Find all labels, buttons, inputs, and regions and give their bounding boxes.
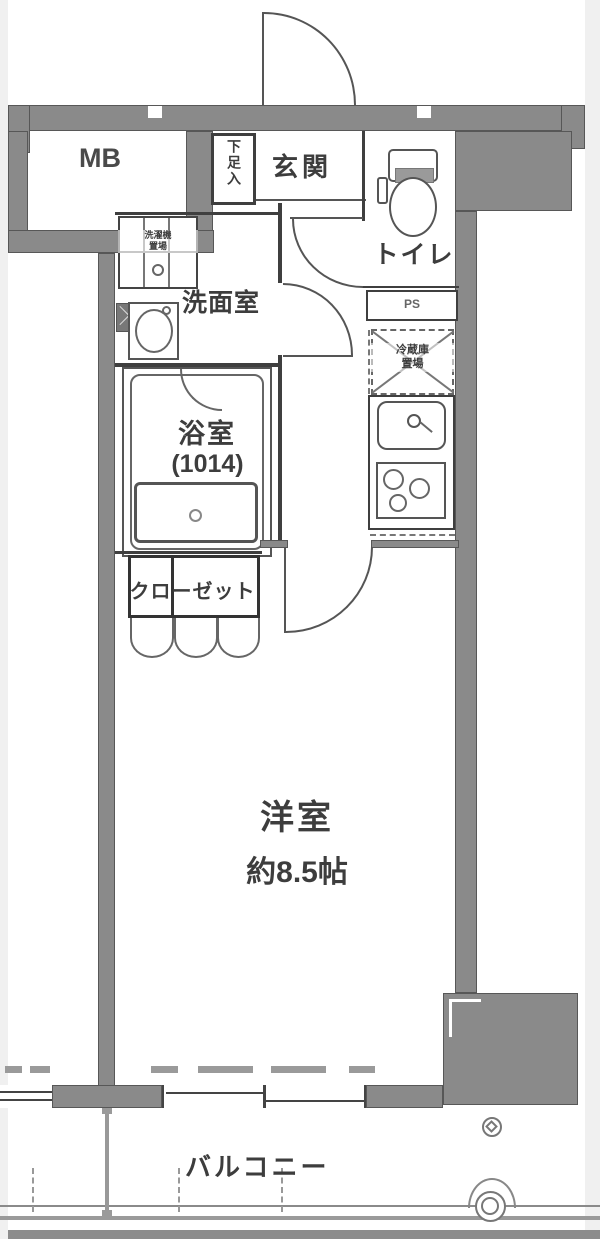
balcony-divider bbox=[105, 1110, 109, 1216]
main-window-frame-right bbox=[364, 1085, 366, 1108]
top-right-wall-block bbox=[455, 131, 572, 211]
corridor-wall-lower bbox=[278, 355, 282, 547]
stove-burner-1 bbox=[383, 469, 404, 490]
curtain-dash-b bbox=[30, 1066, 50, 1073]
toilet-door-arc bbox=[292, 219, 363, 288]
balcony-divider-foot-top bbox=[102, 1108, 112, 1114]
right-margin bbox=[585, 0, 600, 1239]
main-room-label-group: 洋室 約8.5帖 bbox=[197, 790, 397, 891]
balcony-drain-inner bbox=[481, 1197, 499, 1215]
left-outer-wall bbox=[98, 253, 115, 1108]
toilet-label: トイレ bbox=[368, 235, 460, 271]
room-wall-right-segment bbox=[371, 540, 459, 548]
mb-label: MB bbox=[60, 143, 140, 174]
wall-notch-2 bbox=[417, 106, 431, 118]
laundry-label-line2: 置場 bbox=[149, 241, 167, 251]
stove-burner-3 bbox=[389, 494, 407, 512]
kitchen-front-dashed-edge bbox=[368, 330, 370, 394]
refrigerator-label: 冷蔵庫 置場 bbox=[371, 343, 454, 372]
toilet-flush-handle bbox=[377, 177, 388, 204]
entrance-door-arc bbox=[264, 12, 356, 105]
bathroom-label: 浴室 bbox=[152, 412, 262, 451]
left-margin bbox=[0, 0, 8, 1239]
pipe-space-label: PS bbox=[366, 297, 458, 311]
washroom-label: 洗面室 bbox=[182, 283, 260, 319]
curtain-dash-2 bbox=[198, 1066, 253, 1073]
wall-notch-1 bbox=[148, 106, 162, 118]
room-door-arc bbox=[286, 547, 373, 633]
main-window-sash-1 bbox=[166, 1092, 266, 1094]
balcony-tick-1 bbox=[32, 1168, 34, 1212]
neighbor-window-line-2 bbox=[0, 1099, 52, 1101]
refrigerator-label-line2: 置場 bbox=[402, 358, 424, 370]
toilet-bowl bbox=[389, 177, 437, 237]
kitchen-bottom-dashed-edge bbox=[370, 534, 455, 536]
curtain-dash-a bbox=[5, 1066, 22, 1073]
top-wall bbox=[8, 105, 585, 131]
bottom-wall-mid-segment bbox=[366, 1085, 443, 1108]
main-window-frame-left bbox=[162, 1085, 164, 1108]
balcony-edge-line bbox=[0, 1216, 600, 1220]
washroom-door-arc bbox=[283, 283, 353, 355]
corridor-wall-upper bbox=[278, 203, 282, 283]
main-room-size-label: 約8.5帖 bbox=[197, 847, 397, 891]
curtain-dash-3 bbox=[271, 1066, 326, 1073]
neighbor-window bbox=[0, 1085, 52, 1108]
main-window-frame-center bbox=[263, 1085, 266, 1108]
curtain-dash-4 bbox=[349, 1066, 375, 1073]
pillar-inset-line-h bbox=[449, 999, 481, 1002]
washroom-door-leaf bbox=[283, 355, 353, 357]
pillar-inset-line-v bbox=[449, 999, 452, 1037]
closet-door-arc-1 bbox=[130, 618, 174, 658]
laundry-drain bbox=[152, 264, 164, 276]
bottom-wall-left-segment bbox=[52, 1085, 162, 1108]
bathroom-size-label: (1014) bbox=[145, 450, 270, 479]
closet-door-arc-3 bbox=[217, 618, 260, 658]
balcony-divider-foot-bottom bbox=[102, 1210, 112, 1217]
closet-door-arc-2 bbox=[174, 618, 218, 658]
room-wall-left-segment bbox=[260, 540, 288, 548]
closet-top-wall bbox=[115, 551, 262, 554]
stove-burner-2 bbox=[409, 478, 430, 499]
closet-label: クローゼット bbox=[110, 575, 275, 604]
curtain-dash-1 bbox=[151, 1066, 178, 1073]
toilet-bottom-wall bbox=[362, 286, 459, 288]
entrance-label: 玄関 bbox=[272, 147, 332, 184]
neighbor-window-line-1 bbox=[0, 1091, 52, 1093]
laundry-label: 洗濯機 置場 bbox=[118, 230, 198, 253]
bottom-right-pillar bbox=[443, 993, 578, 1105]
bottom-ground-strip bbox=[8, 1230, 600, 1239]
main-window-sash-2 bbox=[266, 1100, 364, 1102]
floor-plan: MB 下足入 玄関 トイレ PS 冷蔵庫 置場 洗濯機 置場 bbox=[0, 0, 600, 1239]
washbasin-bowl bbox=[135, 309, 173, 353]
bathtub-drain bbox=[189, 509, 202, 522]
laundry-label-line1: 洗濯機 bbox=[144, 230, 171, 240]
entrance-step-line bbox=[256, 199, 366, 201]
balcony-label: バルコニー bbox=[185, 1147, 329, 1184]
washroom-top-wall bbox=[115, 212, 281, 215]
toilet-left-wall bbox=[362, 131, 365, 221]
washbasin-faucet bbox=[162, 306, 171, 315]
shoe-storage-label: 下足入 bbox=[224, 139, 244, 187]
balcony-tick-2 bbox=[178, 1168, 180, 1212]
right-outer-wall bbox=[455, 211, 477, 993]
main-room-label: 洋室 bbox=[197, 790, 397, 839]
refrigerator-label-line1: 冷蔵庫 bbox=[396, 344, 429, 356]
